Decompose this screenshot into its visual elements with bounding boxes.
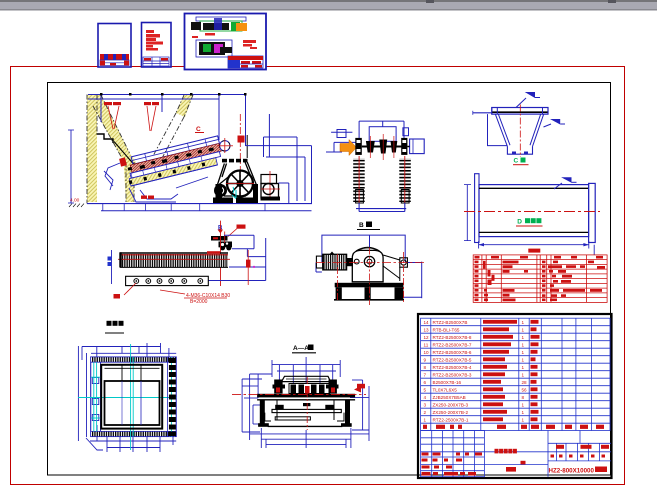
svg-text:4: 4 bbox=[424, 395, 427, 400]
svg-text:14: 14 bbox=[424, 320, 430, 325]
svg-text:8: 8 bbox=[522, 395, 525, 400]
svg-text:1: 1 bbox=[522, 402, 525, 407]
svg-text:ZX250-200X7B-3: ZX250-200X7B-3 bbox=[433, 402, 469, 407]
svg-text:56: 56 bbox=[522, 387, 528, 392]
svg-text:RTZ2-B2500X7B-3: RTZ2-B2500X7B-3 bbox=[433, 372, 472, 377]
svg-text:B: B bbox=[359, 222, 364, 229]
svg-text:2: 2 bbox=[424, 410, 427, 415]
svg-text:4.00: 4.00 bbox=[70, 198, 80, 204]
svg-text:12: 12 bbox=[424, 335, 430, 340]
svg-text:RTZ2-2500X7B-1: RTZ2-2500X7B-1 bbox=[433, 417, 469, 422]
svg-text:RTZ2-B2500X7B-7: RTZ2-B2500X7B-7 bbox=[433, 342, 472, 347]
svg-text:9: 9 bbox=[424, 357, 427, 362]
svg-text:RTZ2-B2500X7B-6: RTZ2-B2500X7B-6 bbox=[433, 350, 472, 355]
svg-text:1: 1 bbox=[522, 365, 525, 370]
svg-text:D: D bbox=[517, 219, 522, 226]
svg-text:TL0X7L6X5: TL0X7L6X5 bbox=[433, 387, 458, 392]
svg-text:1: 1 bbox=[522, 417, 525, 422]
svg-text:5: 5 bbox=[424, 387, 427, 392]
svg-text:1: 1 bbox=[522, 357, 525, 362]
svg-text:13: 13 bbox=[424, 327, 430, 332]
svg-text:1: 1 bbox=[522, 335, 525, 340]
svg-text:1: 1 bbox=[522, 327, 525, 332]
svg-text:8: 8 bbox=[424, 365, 427, 370]
svg-text:28: 28 bbox=[522, 380, 528, 385]
svg-text:6: 6 bbox=[424, 380, 427, 385]
svg-text:7: 7 bbox=[424, 372, 427, 377]
svg-text:1: 1 bbox=[424, 417, 427, 422]
svg-text:ZX250-200X7B-2: ZX250-200X7B-2 bbox=[433, 410, 469, 415]
svg-text:1: 1 bbox=[522, 410, 525, 415]
svg-text:B2500X7B-16: B2500X7B-16 bbox=[433, 380, 462, 385]
svg-text:11: 11 bbox=[424, 342, 429, 347]
svg-text:1: 1 bbox=[522, 372, 525, 377]
svg-text:1: 1 bbox=[522, 350, 525, 355]
svg-text:RTB-BLI-T65: RTB-BLI-T65 bbox=[433, 327, 460, 332]
svg-text:RTZ2-B2500X7B-5: RTZ2-B2500X7B-5 bbox=[433, 357, 472, 362]
svg-text:RTZ2-B2500X7B-8: RTZ2-B2500X7B-8 bbox=[433, 335, 472, 340]
svg-text:C: C bbox=[514, 158, 519, 165]
svg-text:RTZ2-B2500X7B-4: RTZ2-B2500X7B-4 bbox=[433, 365, 472, 370]
svg-text:ZJB250X7B5AB: ZJB250X7B5AB bbox=[433, 395, 466, 400]
svg-text:3: 3 bbox=[424, 402, 427, 407]
svg-text:RTZ2-B2500X7B: RTZ2-B2500X7B bbox=[433, 320, 468, 325]
svg-text:1: 1 bbox=[522, 320, 525, 325]
svg-text:B=2000: B=2000 bbox=[190, 299, 208, 305]
svg-text:1: 1 bbox=[522, 342, 525, 347]
svg-text:A—A: A—A bbox=[293, 345, 309, 352]
svg-text:HZ2-800X10000: HZ2-800X10000 bbox=[549, 468, 595, 475]
svg-text:C: C bbox=[196, 126, 201, 133]
svg-text:10: 10 bbox=[424, 350, 430, 355]
